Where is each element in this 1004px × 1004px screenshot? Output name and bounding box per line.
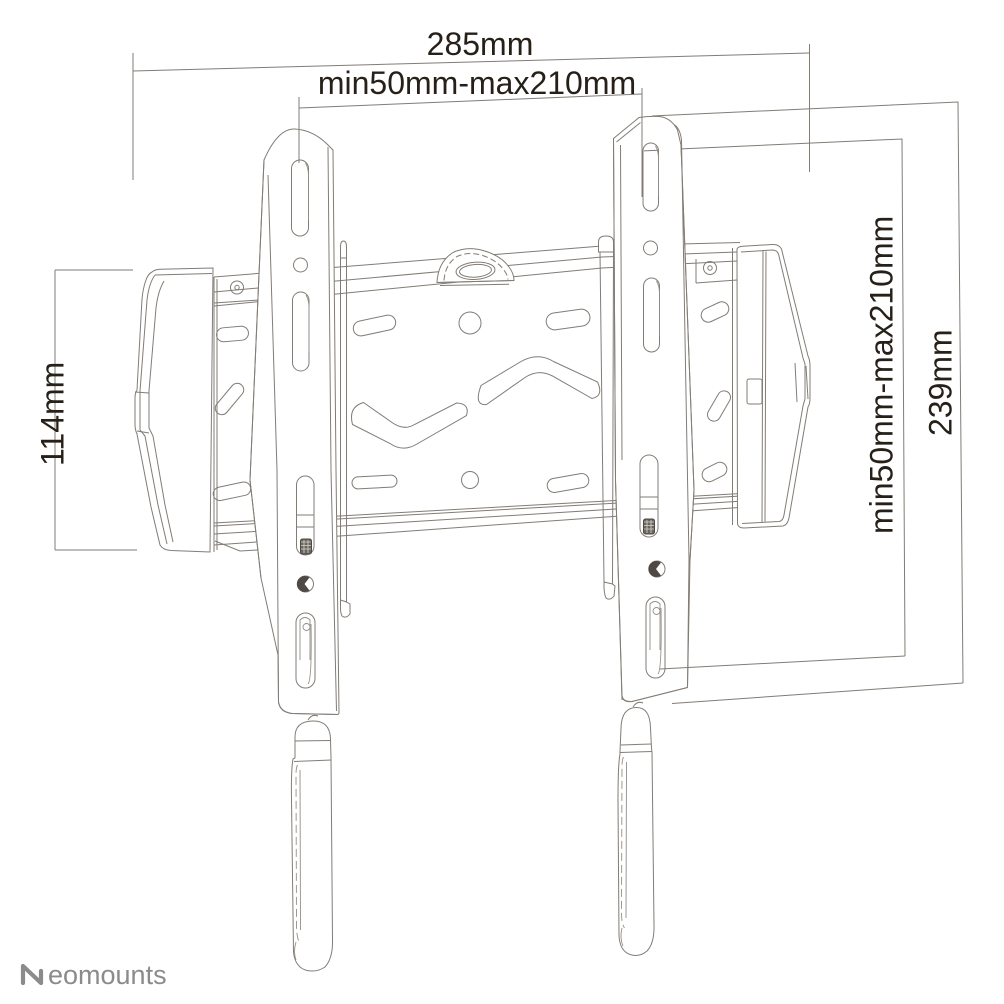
svg-text:min50mm-max210mm: min50mm-max210mm (318, 65, 636, 101)
svg-text:eomounts: eomounts (48, 960, 167, 990)
svg-text:min50mm-max210mm: min50mm-max210mm (864, 216, 900, 534)
svg-text:285mm: 285mm (427, 26, 534, 62)
svg-text:239mm: 239mm (923, 329, 959, 436)
svg-text:114mm: 114mm (35, 362, 71, 466)
